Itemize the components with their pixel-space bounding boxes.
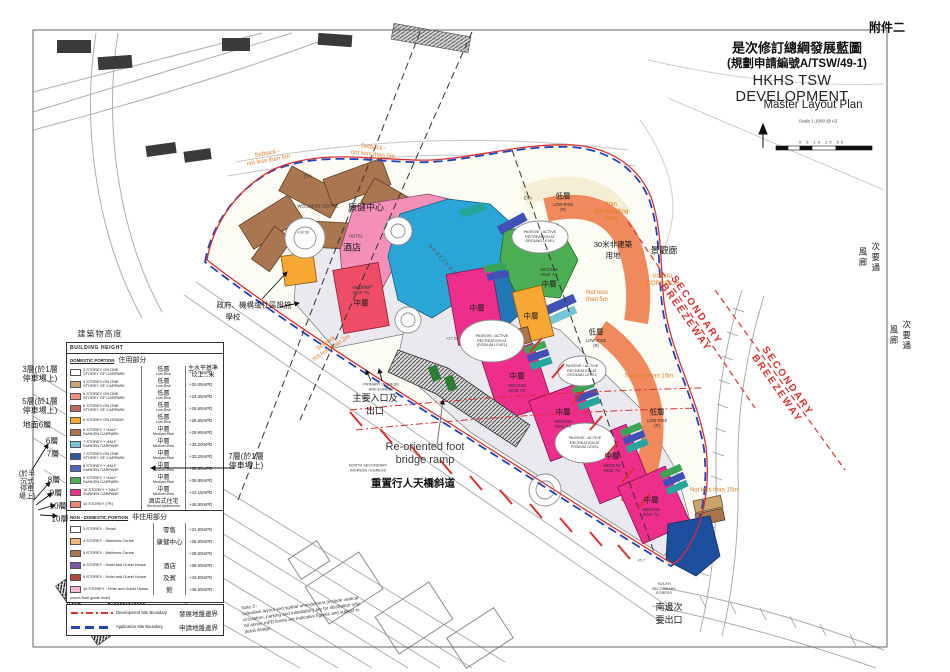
legend-row-domestic: 5 STOREY ON ONE STOREY OF CARPARK低層Low-R… (67, 390, 223, 402)
legend-boundary-row: Development Site Boundary發展地盤邊界 (71, 608, 219, 618)
legend-mpd-value: +21.50mPD (185, 523, 223, 535)
legend-swatch-cell (67, 381, 83, 388)
legend-swatch-cell (67, 562, 83, 569)
plan-title-zh: 是次修訂總綱發展藍圖 (732, 38, 862, 57)
legend-mpd-value: +43.15mPD (185, 486, 223, 498)
legend-row-label-zh (153, 547, 185, 559)
legend-row-label: 9 STOREY + HALF SUNKEN CARPARK (83, 476, 141, 485)
legend-swatch-cell (67, 501, 83, 508)
legend-color-swatch (70, 538, 81, 545)
legend-row-non-domestic: 3 STOREY - Retail零售+21.50mPD (67, 523, 223, 535)
legend-row-label: 9 STOREY - Hotel and Guest House (83, 575, 153, 579)
legend-mpd-value: +26.65mPD (185, 414, 223, 426)
legend-mpd-value: +33.20mPD (185, 438, 223, 450)
legend-footnote: (count from grade level) (67, 595, 223, 602)
legend-color-swatch (70, 574, 81, 581)
legend-domestic-section: DOMESTIC PORTION 住用部分 主水平基準 以上...米 (67, 354, 223, 366)
legend-row-label: 10 STOREY + HALF SUNKEN CARPARK (83, 488, 141, 497)
legend-color-swatch (70, 562, 81, 569)
legend-mpd-value: +29.95mPD (185, 426, 223, 438)
scale-bar-ticks: 0 5 10 20 50 (799, 140, 845, 145)
legend-boundary-label-zh: 發展地盤邊界 (179, 608, 227, 618)
legend-row-label-zh: 酒店 (153, 559, 185, 571)
legend-non-domestic-en: NON - DOMESTIC PORTION (70, 515, 128, 520)
legend-row-non-domestic: 5 STOREY - Wellness Centre+28.50mPD (67, 547, 223, 559)
legend-row-label: 3 STOREY ON ONE STOREY OF CARPARK (83, 368, 141, 377)
legend-mpd-value: +36.55mPD (185, 462, 223, 474)
legend-color-swatch (70, 526, 81, 533)
legend-swatch-cell (67, 369, 83, 376)
legend-building-height: BUILDING HEIGHT DOMESTIC PORTION 住用部分 主水… (66, 342, 224, 603)
legend-mpd-value: +24.35mPD (185, 390, 223, 402)
legend-rise-cell: 低層Low-Rise (141, 414, 185, 426)
legend-row-label: 3 STOREY - Retail (83, 527, 153, 531)
legend-row-non-domestic: 8 STOREY - Hotel and Guest House酒店+39.50… (67, 559, 223, 571)
legend-row-non-domestic: 4 STOREY - Wellness Centre康健中心+25.50mPD (67, 535, 223, 547)
legend-mpd-value: +25.50mPD (185, 535, 223, 547)
legend-swatch-cell (67, 586, 83, 593)
legend-non-domestic-zh: 非住用部分 (132, 512, 167, 522)
legend-row-domestic: 6 STOREY + HALF SUNKEN CARPARK中層Medium-R… (67, 426, 223, 438)
legend-row-domestic: 5 STOREY ON ONE STOREY OF CARPARK低層Low-R… (67, 402, 223, 414)
legend-row-label: 10 STOREY (7R) (83, 502, 141, 506)
legend-swatch-cell (67, 574, 83, 581)
legend-boundary-label-en: Development Site Boundary (116, 611, 176, 616)
legend-row-label: 7 STOREY ON ONE STOREY OF CARPARK (83, 452, 141, 461)
legend-rise-cell: 中層Medium-Rise (141, 474, 185, 486)
plan-application-no: (規劃申請編號A/TSW/49-1) (727, 55, 867, 71)
legend-row-domestic: 6 STOREY ON GRADE低層Low-Rise+26.65mPD (67, 414, 223, 426)
legend-mpd-value: +33.25mPD (185, 450, 223, 462)
legend-swatch-cell (67, 489, 83, 496)
legend-mpd-column-header: 主水平基準 以上...米 (184, 366, 222, 380)
legend-row-label: 6 STOREY ON GRADE (83, 418, 141, 422)
legend-mpd-value: +39.85mPD (185, 474, 223, 486)
legend-mpd-value: +28.50mPD (185, 547, 223, 559)
legend-row-label: 5 STOREY ON ONE STOREY OF CARPARK (83, 392, 141, 401)
legend-row-label: 8 STOREY - Hotel and Guest House (83, 563, 153, 567)
legend-mpd-value: +43.50mPD (185, 571, 223, 583)
legend-row-label: 5 STOREY ON ONE STOREY OF CARPARK (83, 404, 141, 413)
master-layout-plan-page: 建築物高度3層(於1層 停車場上)5層(於1層 停車場上)地面6層6層7層(於半… (0, 0, 950, 672)
legend-row-label: 3 STOREY ON ONE STOREY OF CARPARK (83, 380, 141, 389)
legend-swatch-cell (67, 453, 83, 460)
legend-color-swatch (70, 393, 81, 400)
legend-swatch-cell (67, 393, 83, 400)
legend-color-swatch (70, 465, 81, 472)
north-arrow (759, 124, 767, 148)
legend-color-swatch (70, 586, 81, 593)
legend-row-domestic: 10 STOREY (7R)酒店式住宅Serviced Apartments+4… (67, 498, 223, 510)
legend-row-label: 6 STOREY + HALF SUNKEN CARPARK (83, 428, 141, 437)
legend-color-swatch (70, 501, 81, 508)
legend-swatch-cell (67, 538, 83, 545)
legend-rise-cell: 低層Low-Rise (141, 378, 185, 390)
annex-number: 附件二 (869, 19, 905, 36)
legend-color-swatch (70, 489, 81, 496)
legend-rise-cell: 中層Medium-Rise (141, 450, 185, 462)
legend-color-swatch (70, 369, 81, 376)
legend-swatch-cell (67, 477, 83, 484)
legend-mpd-value: +46.50mPD (185, 583, 223, 595)
app-boundary-line (71, 626, 113, 629)
legend-mpd-value: +46.50mPD (185, 498, 223, 510)
legend-swatch-cell (67, 526, 83, 533)
legend-boundary-label-en: Application Site Boundary (116, 625, 176, 630)
legend-color-swatch (70, 453, 81, 460)
legend-row-label-zh: 康健中心 (153, 535, 185, 547)
legend-row-label: 10 STOREY - Hotel and Guest House (83, 587, 153, 591)
legend-row-non-domestic: 9 STOREY - Hotel and Guest House及賓+43.50… (67, 571, 223, 583)
legend-domestic-en: DOMESTIC PORTION (70, 358, 114, 363)
legend-color-swatch (70, 381, 81, 388)
legend-mpd-value: +26.65mPD (185, 402, 223, 414)
scale-bar (776, 146, 872, 150)
legend-row-label-zh: 館 (153, 583, 185, 595)
legend-color-swatch (70, 550, 81, 557)
legend-swatch-cell (67, 429, 83, 436)
legend-mpd-value: +39.50mPD (185, 559, 223, 571)
legend-row-label-zh: 零售 (153, 523, 185, 535)
legend-row-label: 8 STOREY + HALF SUNKEN CARPARK (83, 464, 141, 473)
legend-rise-cell: 中層Medium-Rise (141, 438, 185, 450)
legend-color-swatch (70, 477, 81, 484)
legend-rise-cell: 低層Low-Rise (141, 390, 185, 402)
legend-row-label-zh: 及賓 (153, 571, 185, 583)
legend-swatch-cell (67, 417, 83, 424)
legend-boundaries: Development Site Boundary發展地盤邊界Applicati… (66, 604, 224, 636)
legend-header: BUILDING HEIGHT (67, 343, 223, 354)
legend-rise-cell: 中層Medium-Rise (141, 486, 185, 498)
legend-row-domestic: 9 STOREY + HALF SUNKEN CARPARK中層Medium-R… (67, 474, 223, 486)
legend-rise-cell: 中層Medium-Rise (141, 462, 185, 474)
legend-row-label: 7 STOREY + HALF SUNKEN CARPARK (83, 440, 141, 449)
legend-color-swatch (70, 405, 81, 412)
legend-swatch-cell (67, 550, 83, 557)
legend-row-domestic: 7 STOREY + HALF SUNKEN CARPARK中層Medium-R… (67, 438, 223, 450)
legend-swatch-cell (67, 405, 83, 412)
legend-color-swatch (70, 441, 81, 448)
dev-boundary-line (71, 612, 113, 614)
legend-domestic-zh: 住用部分 (118, 355, 146, 365)
legend-non-domestic-section: NON - DOMESTIC PORTION 非住用部分 (67, 510, 223, 523)
legend-non-domestic-rows: 3 STOREY - Retail零售+21.50mPD4 STOREY - W… (67, 523, 223, 595)
legend-row-domestic: 7 STOREY ON ONE STOREY OF CARPARK中層Mediu… (67, 450, 223, 462)
legend-rise-cell: 中層Medium-Rise (141, 426, 185, 438)
legend-row-label: 4 STOREY - Wellness Centre (83, 539, 153, 543)
legend-rise-cell: 低層Low-Rise (141, 366, 185, 378)
legend-rise-cell: 低層Low-Rise (141, 402, 185, 414)
legend-rise-cell: 酒店式住宅Serviced Apartments (141, 498, 185, 510)
legend-row-label: 5 STOREY - Wellness Centre (83, 551, 153, 555)
legend-row-non-domestic: 10 STOREY - Hotel and Guest House館+46.50… (67, 583, 223, 595)
legend-swatch-cell (67, 441, 83, 448)
legend-row-domestic: 8 STOREY + HALF SUNKEN CARPARK中層Medium-R… (67, 462, 223, 474)
legend-swatch-cell (67, 465, 83, 472)
legend-boundary-row: Application Site Boundary申請地盤邊界 (71, 622, 219, 632)
legend-domestic-rows: 3 STOREY ON ONE STOREY OF CARPARK低層Low-R… (67, 366, 223, 510)
legend-color-swatch (70, 429, 81, 436)
legend-row-domestic: 10 STOREY + HALF SUNKEN CARPARK中層Medium-… (67, 486, 223, 498)
legend-boundary-label-zh: 申請地盤邊界 (179, 622, 227, 632)
legend-color-swatch (70, 417, 81, 424)
scale-note: Scale 1:1000 @ A3 (799, 119, 838, 124)
plan-subtitle-en: Master Layout Plan (763, 99, 862, 111)
